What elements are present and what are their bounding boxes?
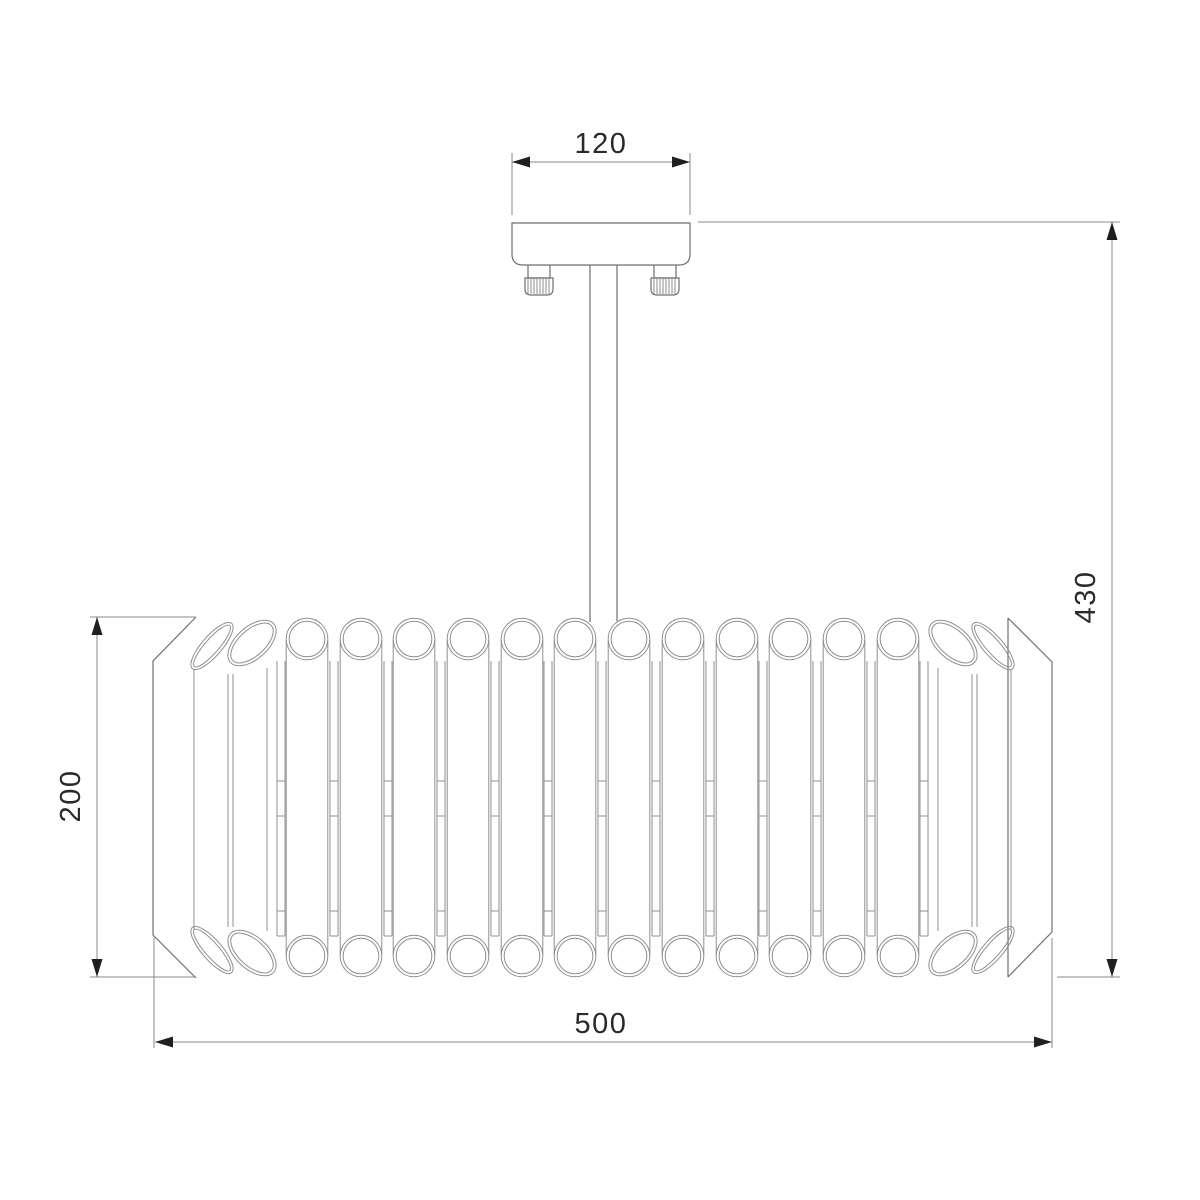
dimension-shade-height: 200 [55, 617, 196, 977]
dimension-label-200: 200 [55, 770, 87, 823]
lampshade [153, 612, 1052, 985]
arrowhead-bottom [1107, 959, 1118, 977]
knurl-lines [654, 279, 675, 294]
shade-left-end-panel [153, 617, 196, 978]
arrowhead-top [92, 617, 103, 635]
tilted-tube-bottom-left [185, 921, 284, 984]
suspension-rod [590, 265, 617, 622]
arrowhead-top [1107, 222, 1118, 240]
dimension-label-430: 430 [1070, 571, 1102, 624]
dimension-total-height: 430 [698, 222, 1120, 977]
arrowhead-right [1034, 1037, 1052, 1048]
back-tube-strips [277, 661, 928, 936]
technical-drawing-chandelier-elevation: 120 430 200 500 [0, 0, 1200, 1200]
tilted-tube-top-left [185, 612, 284, 931]
arrowhead-left [155, 1037, 173, 1048]
mounting-screw-right [651, 265, 679, 295]
tilted-tube-bottom-right [921, 921, 1020, 984]
front-crystal-tubes [286, 618, 919, 977]
arrowhead-left [512, 157, 530, 168]
mounting-screw-left [525, 265, 553, 295]
knurl-lines [528, 279, 549, 294]
arrowhead-bottom [92, 959, 103, 977]
shade-right-end-panel [1008, 618, 1052, 977]
dimension-label-120: 120 [575, 128, 628, 160]
dimension-shade-width: 500 [154, 938, 1052, 1048]
ceiling-canopy [512, 223, 690, 265]
arrowhead-right [672, 157, 690, 168]
tilted-tube-top-right [921, 612, 1020, 931]
dimension-label-500: 500 [575, 1008, 628, 1040]
dimension-canopy-width: 120 [512, 128, 690, 215]
